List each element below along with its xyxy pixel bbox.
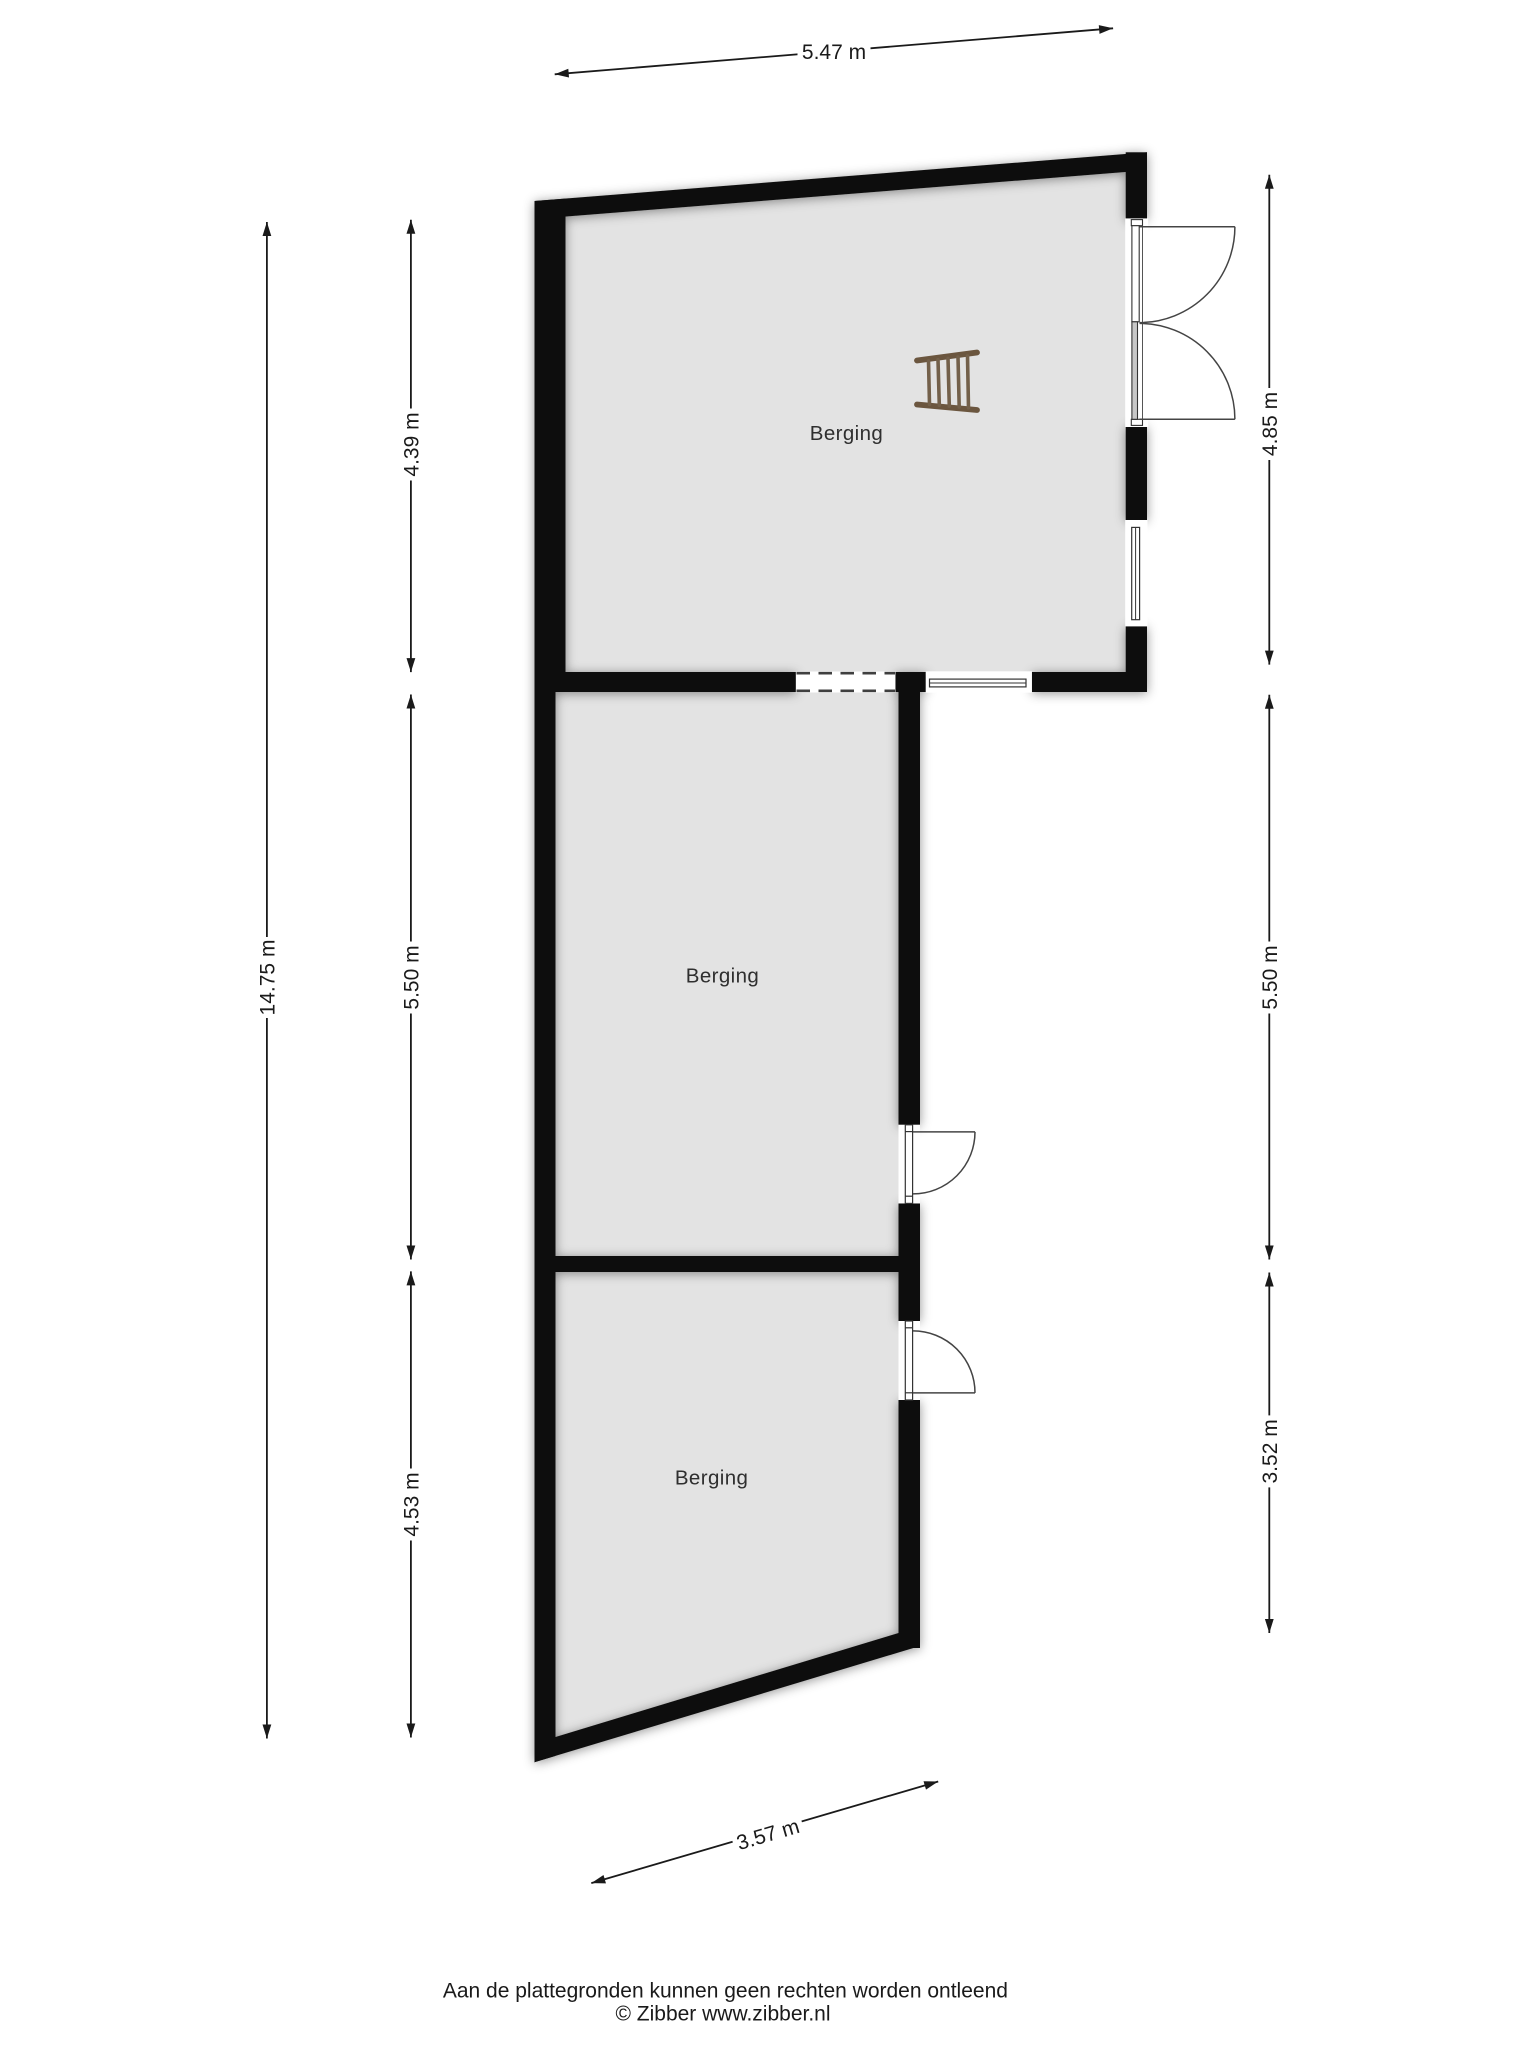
svg-text:Berging: Berging [810,422,883,445]
svg-text:3.52 m: 3.52 m [1259,1419,1282,1483]
svg-text:5.50 m: 5.50 m [1259,945,1282,1009]
svg-text:Berging: Berging [686,965,759,988]
svg-text:14.75 m: 14.75 m [256,940,279,1016]
svg-text:4.39 m: 4.39 m [400,412,423,476]
svg-text:5.50 m: 5.50 m [400,945,423,1009]
svg-text:© Zibber www.zibber.nl: © Zibber www.zibber.nl [615,2003,830,2026]
svg-text:4.53 m: 4.53 m [400,1472,423,1536]
svg-text:Aan de plattegronden kunnen ge: Aan de plattegronden kunnen geen rechten… [443,1980,1008,2003]
svg-text:4.85 m: 4.85 m [1259,392,1282,456]
svg-text:Berging: Berging [675,1467,748,1490]
svg-text:5.47 m: 5.47 m [802,41,866,64]
